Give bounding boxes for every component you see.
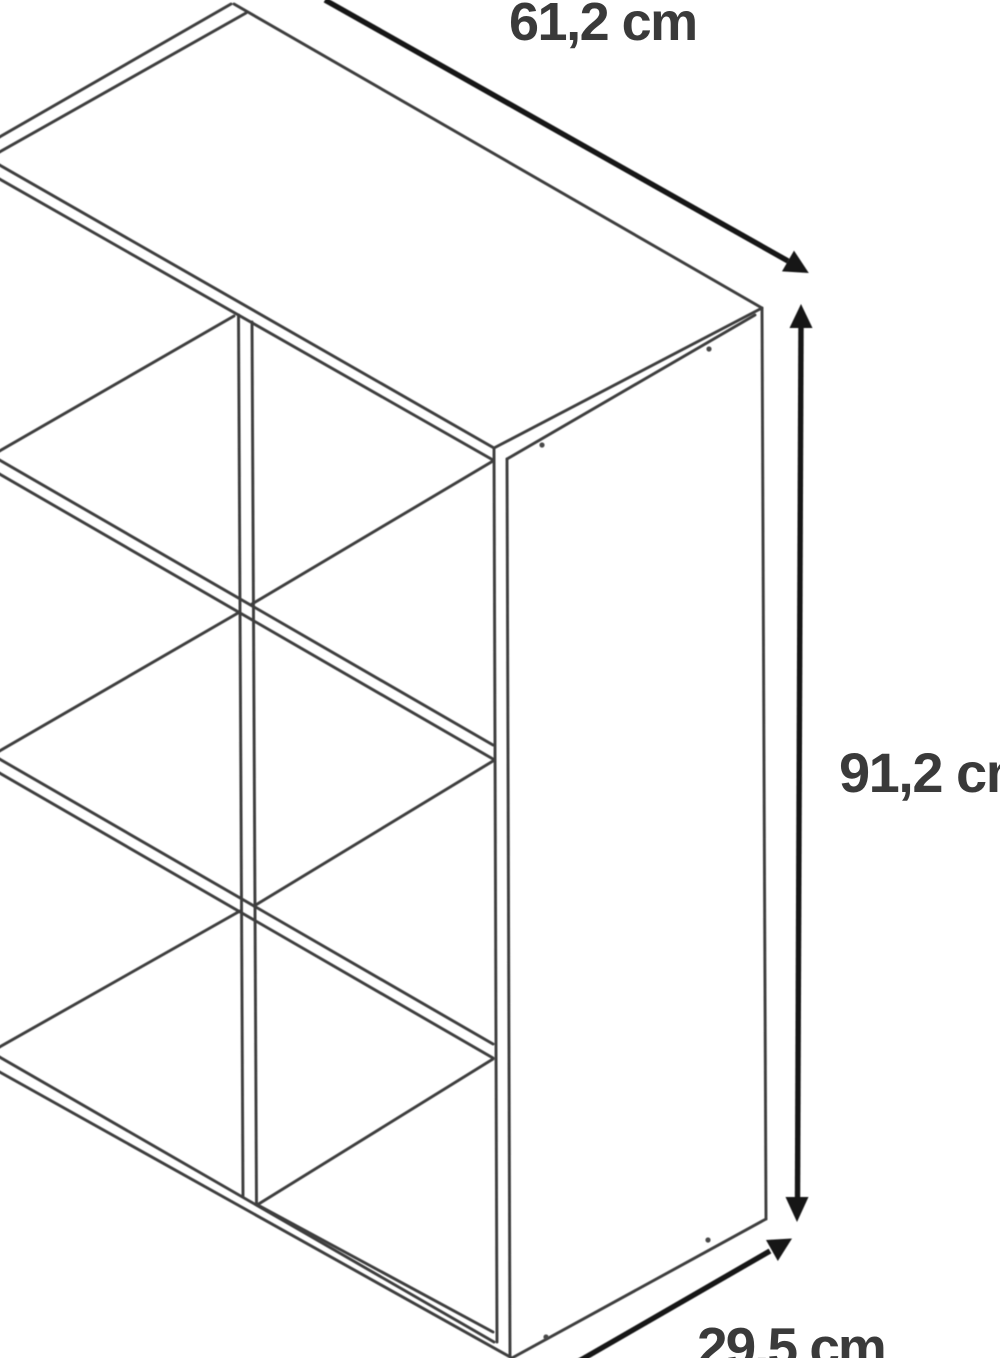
svg-text:61,2 cm: 61,2 cm	[509, 0, 697, 52]
svg-text:29,5 cm: 29,5 cm	[697, 1316, 885, 1358]
svg-text:91,2 cm: 91,2 cm	[839, 741, 1000, 804]
